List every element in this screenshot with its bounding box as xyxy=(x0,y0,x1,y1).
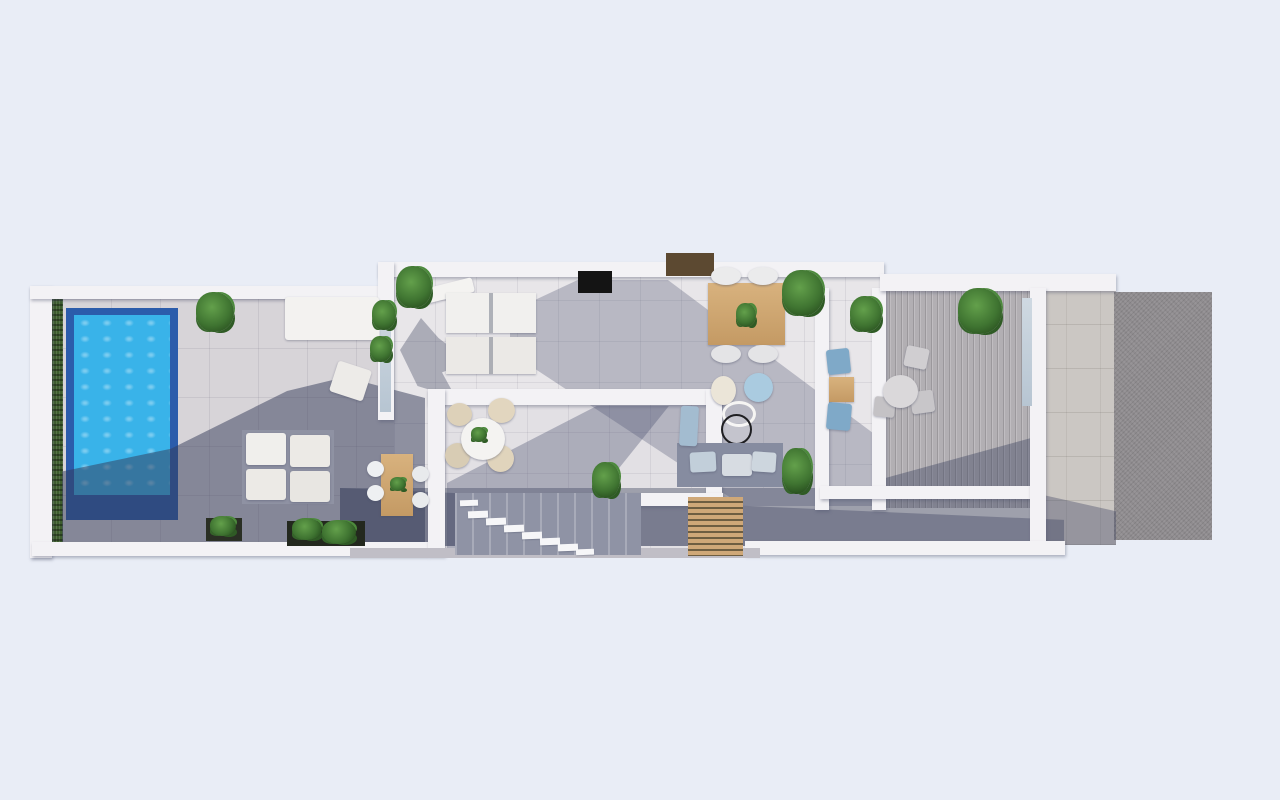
stair-step xyxy=(468,511,488,519)
dining-chair xyxy=(748,345,778,363)
gray-sofa-cushion xyxy=(689,451,716,472)
hall-desk-wood xyxy=(829,377,854,402)
courtyard-left-wall xyxy=(428,389,445,556)
pouf-blue xyxy=(744,373,773,402)
planter-plant xyxy=(322,520,356,544)
courtyard-table-plant xyxy=(471,427,487,442)
gray-sofa-cushion xyxy=(751,451,776,473)
side-terrace-chair xyxy=(903,345,930,370)
planter-small-plant xyxy=(210,516,236,536)
roof-skylight xyxy=(666,253,714,276)
plant-terrace-top xyxy=(196,292,234,332)
plant-sofa-right xyxy=(782,448,812,494)
driveway-floor xyxy=(1114,292,1212,540)
terrace-sofa-cushion xyxy=(290,435,330,467)
stair-step xyxy=(486,518,506,526)
floorplan-render xyxy=(0,0,1280,800)
outdoor-chair xyxy=(412,466,429,482)
hall-chair-blue xyxy=(826,348,851,375)
plant-left-wall xyxy=(372,300,396,330)
dining-table-plant xyxy=(736,303,756,327)
outdoor-chair xyxy=(412,492,429,508)
terrace-pot-plant xyxy=(958,288,1002,334)
right-divider-wall xyxy=(1030,288,1046,545)
outer-left-wall xyxy=(30,286,52,558)
dining-chair xyxy=(711,345,741,363)
plant-courtyard xyxy=(592,462,620,498)
terrace-sofa-cushion xyxy=(246,469,286,500)
plant-left-wall xyxy=(370,336,392,362)
daybed xyxy=(285,297,379,340)
pergola-slats xyxy=(688,497,743,556)
hall-bottom-wall xyxy=(820,486,1034,499)
courtyard-top-wall xyxy=(428,389,723,405)
plant-interior-corner xyxy=(396,266,432,308)
outdoor-chair xyxy=(367,461,384,477)
stair-step xyxy=(460,500,478,507)
round-floor-lamp xyxy=(721,414,752,445)
hall-left-wall xyxy=(815,288,829,510)
tv-screen xyxy=(578,271,612,293)
dining-chair xyxy=(711,267,741,285)
pouf-cream xyxy=(711,376,736,405)
hall-chair-blue xyxy=(826,402,852,431)
outdoor-chair xyxy=(367,485,384,501)
planter-plant xyxy=(292,518,322,540)
plant-hall-top xyxy=(850,296,882,332)
terrace-sofa-cushion xyxy=(290,471,330,502)
side-terrace-glass xyxy=(1022,298,1032,406)
terrace-sofa-cushion xyxy=(246,433,286,465)
staircase xyxy=(455,493,641,555)
side-terrace-table xyxy=(883,375,918,408)
plant-dining-right xyxy=(782,270,824,316)
dining-chair xyxy=(748,267,778,285)
gray-sofa-cushion xyxy=(722,454,752,476)
chaise-blue xyxy=(679,406,699,447)
living-sofa-b xyxy=(446,337,536,374)
stair-step xyxy=(576,549,594,556)
bottom-mid-wall xyxy=(745,541,1065,555)
living-sofa-a xyxy=(446,293,536,333)
outdoor-table-leaves xyxy=(390,477,406,491)
top-right-wall xyxy=(880,274,1116,291)
stair-step xyxy=(504,525,524,533)
